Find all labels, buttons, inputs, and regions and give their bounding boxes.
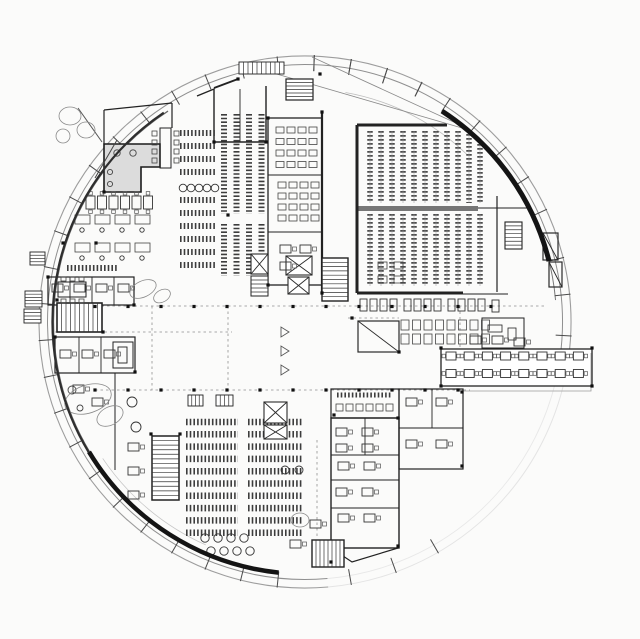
floor-plan-drawing — [0, 0, 640, 639]
circular-building-floor-plan — [0, 0, 640, 639]
scanned-floor-plan-page — [0, 0, 640, 639]
